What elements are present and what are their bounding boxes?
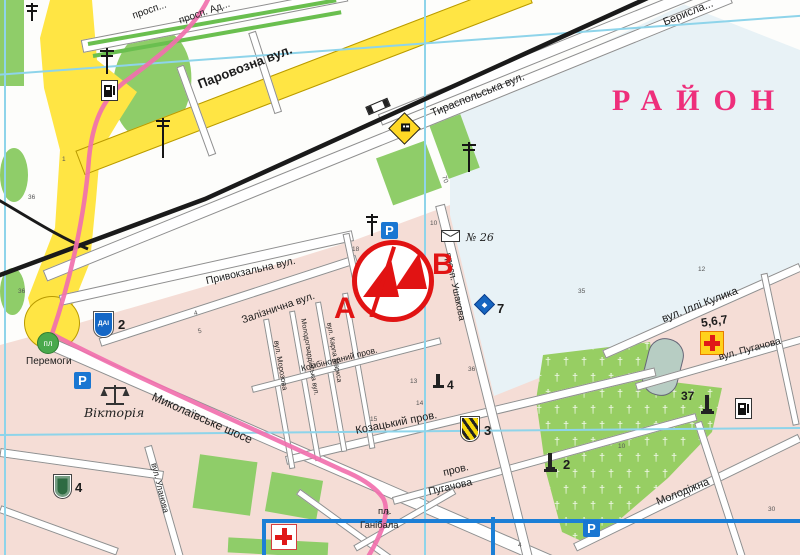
power-pole-icon-3 bbox=[462, 142, 476, 172]
green-shield-number: 4 bbox=[75, 481, 82, 494]
block-number: 5 bbox=[197, 328, 202, 336]
monument-icon-south bbox=[543, 453, 557, 477]
post-office-number: № 26 bbox=[466, 232, 494, 243]
post-office-icon bbox=[441, 230, 460, 242]
dai-number: 2 bbox=[118, 318, 125, 331]
monument-number: 2 bbox=[563, 458, 570, 471]
hospital-numbers: 5,6,7 bbox=[700, 313, 728, 329]
block-number: 12 bbox=[698, 266, 705, 273]
label-hanibala: Ганібала bbox=[360, 521, 399, 531]
city-map: ††††††††††††††††††††††††††††††††††††††††… bbox=[0, 0, 800, 555]
label-peremohy: Перемоги bbox=[26, 357, 72, 367]
block-number: 70 bbox=[440, 175, 449, 184]
power-pole-icon-1 bbox=[100, 48, 114, 74]
green-shield-icon bbox=[54, 475, 71, 498]
well-number: 4 bbox=[447, 379, 454, 391]
block-number: 13 bbox=[410, 378, 417, 385]
power-pole-icon-2 bbox=[156, 118, 170, 158]
monument-37-number: 37 bbox=[681, 390, 694, 402]
label-viktoria: Вікторія bbox=[84, 407, 144, 420]
block-number: 1 bbox=[62, 156, 66, 163]
parking-icon-viktoria: P bbox=[74, 372, 91, 389]
marker-a-label: A bbox=[334, 292, 356, 326]
block-number: 35 bbox=[578, 288, 585, 295]
power-pole-icon-corner bbox=[26, 3, 38, 21]
block-number: 36 bbox=[18, 288, 25, 295]
marker-b-label: B bbox=[432, 248, 454, 282]
dai-label: ДАІ bbox=[98, 320, 109, 327]
crossed-flags-icon bbox=[357, 245, 429, 317]
striped-shield-number: 3 bbox=[484, 424, 491, 437]
block-number: 10 bbox=[430, 220, 437, 227]
power-pole-icon-4 bbox=[366, 214, 378, 236]
monument-icon-37 bbox=[700, 395, 714, 419]
parking-icon-south: P bbox=[583, 520, 600, 537]
block-number: 4 bbox=[193, 310, 198, 318]
pharmacy-icon bbox=[271, 524, 297, 550]
fuel-station-icon-se bbox=[735, 398, 752, 419]
striped-shield-icon bbox=[461, 417, 479, 441]
block-number: 36 bbox=[28, 194, 35, 201]
parking-icon-station: P bbox=[381, 222, 398, 239]
block-number: 36 bbox=[468, 366, 475, 373]
highlight-marker-circle bbox=[352, 240, 434, 322]
district-title: РАЙОН bbox=[612, 86, 788, 116]
block-number: 14 bbox=[416, 400, 423, 407]
fuel-station-icon-nw bbox=[101, 80, 118, 101]
peremohy-square-icon: пл bbox=[37, 332, 59, 354]
label-hanibala-abbr: пл. bbox=[378, 507, 391, 517]
block-number: 10 bbox=[618, 443, 625, 450]
block-number: 30 bbox=[768, 506, 775, 513]
block-number: 4 bbox=[518, 542, 522, 549]
peremohy-abbr: пл bbox=[44, 339, 53, 348]
hotel-number: 7 bbox=[497, 302, 504, 315]
dai-police-icon: ДАІ bbox=[94, 312, 113, 337]
well-icon bbox=[432, 374, 444, 394]
